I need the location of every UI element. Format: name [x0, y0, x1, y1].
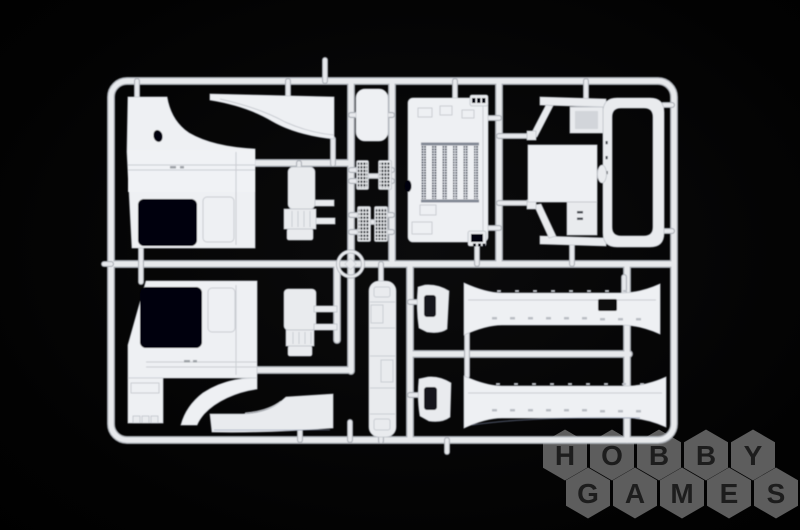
- sprue: [104, 60, 674, 452]
- skirt-cutout: [598, 299, 617, 311]
- watermark-letter: G: [577, 478, 599, 509]
- seat-part-top: [284, 167, 335, 240]
- sprue-photo: HOBBYGAMES: [0, 0, 800, 530]
- vent-grille-4: [375, 207, 388, 242]
- front-grille-part: [369, 281, 396, 437]
- seat-part-bottom: [284, 289, 337, 356]
- cab-side-panel-bottom: [128, 281, 257, 425]
- fender-arch-strip: [210, 94, 334, 139]
- vent-grille-3: [358, 207, 371, 242]
- frame-sub-box: [570, 107, 603, 133]
- cab-floor-panel: [405, 95, 489, 247]
- watermark-letter: B: [696, 440, 716, 471]
- rear-window-ring: [603, 98, 664, 247]
- cab-side-panel-top: [127, 97, 255, 248]
- sun-visor-part: [356, 89, 388, 141]
- window-opening-top: [138, 199, 197, 246]
- watermark-letter: Y: [744, 440, 763, 471]
- watermark-letter: O: [601, 440, 623, 471]
- watermark-letter: B: [649, 440, 669, 471]
- watermark-letter: H: [555, 440, 575, 471]
- vent-grille-2: [379, 161, 392, 190]
- watermark-letter: M: [670, 478, 693, 509]
- frame-lower-box: [567, 202, 597, 235]
- watermark-letter: E: [720, 478, 739, 509]
- rear-cab-frame: [527, 97, 664, 247]
- vent-grilles: [357, 161, 392, 242]
- watermark-letter: A: [625, 478, 645, 509]
- window-opening-bottom: [140, 287, 202, 348]
- photo-canvas: HOBBYGAMES: [0, 0, 800, 530]
- wheel-bracket-lower: [418, 377, 451, 422]
- vent-grille-1: [357, 161, 369, 190]
- roof-plate: [528, 145, 597, 202]
- wheel-bracket-upper: [417, 285, 449, 333]
- step-sill-panel: [210, 394, 333, 432]
- watermark-letter: S: [767, 478, 786, 509]
- side-skirt-panel-lower: [464, 376, 666, 428]
